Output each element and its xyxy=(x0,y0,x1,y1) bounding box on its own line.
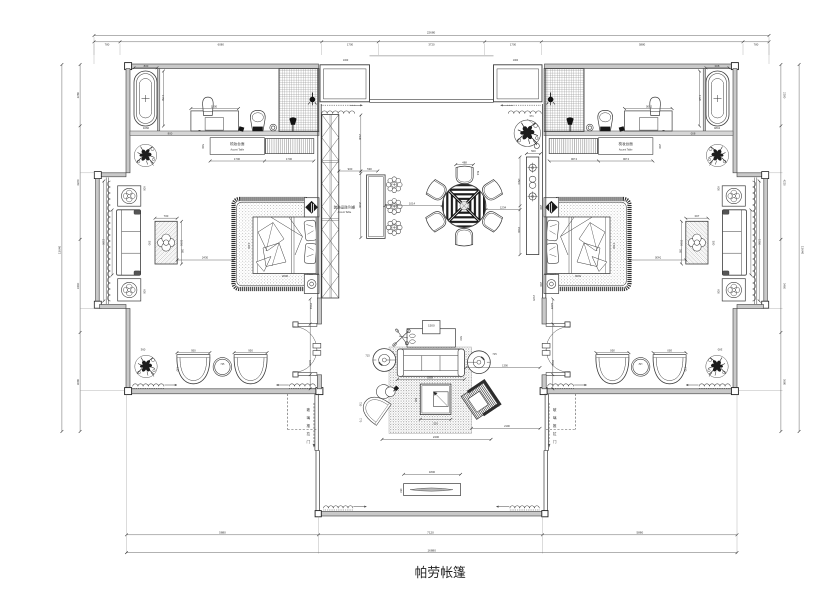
svg-text:1000: 1000 xyxy=(513,59,519,62)
svg-text:拉: 拉 xyxy=(553,431,557,436)
svg-text:拉: 拉 xyxy=(307,431,311,436)
svg-text:1000: 1000 xyxy=(343,59,349,62)
svg-text:350: 350 xyxy=(399,488,403,493)
svg-text:900: 900 xyxy=(348,167,353,171)
svg-text:715: 715 xyxy=(365,354,370,358)
svg-text:3680: 3680 xyxy=(76,378,80,385)
svg-text:5880: 5880 xyxy=(636,531,643,535)
svg-text:玻: 玻 xyxy=(307,407,311,412)
svg-text:22680: 22680 xyxy=(427,31,436,35)
svg-text:930: 930 xyxy=(497,402,501,407)
svg-text:2100: 2100 xyxy=(101,239,105,246)
svg-text:璃: 璃 xyxy=(553,415,557,420)
svg-text:812: 812 xyxy=(476,171,480,176)
svg-text:4220: 4220 xyxy=(76,179,80,186)
svg-text:1800: 1800 xyxy=(429,470,436,474)
svg-text:1060: 1060 xyxy=(143,126,150,130)
svg-text:590: 590 xyxy=(367,167,372,171)
svg-text:390: 390 xyxy=(181,249,184,254)
svg-text:390: 390 xyxy=(148,241,152,246)
svg-text:730: 730 xyxy=(175,367,179,372)
svg-text:730: 730 xyxy=(358,402,362,407)
svg-text:13640: 13640 xyxy=(58,245,62,254)
svg-text:梳妆台面: 梳妆台面 xyxy=(619,141,634,146)
svg-text:1014: 1014 xyxy=(409,201,416,205)
svg-text:1700: 1700 xyxy=(347,43,354,47)
svg-text:520: 520 xyxy=(433,422,438,426)
svg-text:1500: 1500 xyxy=(517,227,521,234)
svg-text:1750: 1750 xyxy=(161,95,165,102)
svg-text:1400: 1400 xyxy=(247,243,251,250)
svg-text:1500: 1500 xyxy=(517,178,521,185)
svg-text:1700: 1700 xyxy=(510,43,517,47)
svg-text:1800: 1800 xyxy=(308,360,312,366)
svg-text:5880: 5880 xyxy=(639,43,646,47)
svg-text:门: 门 xyxy=(307,439,311,444)
svg-text:800: 800 xyxy=(168,132,173,136)
svg-text:2190: 2190 xyxy=(504,424,510,428)
svg-text:800: 800 xyxy=(144,64,149,68)
svg-text:1390: 1390 xyxy=(502,363,508,367)
svg-text:玻: 玻 xyxy=(553,407,557,412)
svg-text:3460: 3460 xyxy=(783,283,787,290)
svg-text:2170: 2170 xyxy=(532,295,536,302)
svg-text:5880: 5880 xyxy=(219,531,226,535)
svg-text:3720: 3720 xyxy=(428,43,435,47)
svg-text:500: 500 xyxy=(531,149,536,153)
svg-text:Accent Table: Accent Table xyxy=(619,148,633,151)
svg-text:2400: 2400 xyxy=(433,435,440,439)
svg-text:2000: 2000 xyxy=(282,274,289,278)
svg-text:16880: 16880 xyxy=(428,548,437,552)
svg-text:600: 600 xyxy=(142,289,146,294)
svg-text:7120: 7120 xyxy=(427,531,434,535)
svg-text:6080: 6080 xyxy=(218,43,225,47)
svg-text:1234: 1234 xyxy=(500,205,507,209)
svg-text:500: 500 xyxy=(459,336,463,341)
svg-text:3460: 3460 xyxy=(76,282,80,289)
svg-text:梳妆台面: 梳妆台面 xyxy=(230,141,245,146)
svg-text:725: 725 xyxy=(220,363,225,366)
svg-text:500: 500 xyxy=(201,144,205,149)
svg-text:700: 700 xyxy=(164,214,169,218)
svg-text:2280: 2280 xyxy=(76,92,80,99)
svg-text:2085: 2085 xyxy=(427,375,433,379)
svg-text:950: 950 xyxy=(191,348,196,352)
svg-text:装饰品陈列桌: 装饰品陈列桌 xyxy=(334,205,356,210)
svg-text:Accent Table: Accent Table xyxy=(338,211,352,214)
svg-text:1700: 1700 xyxy=(286,157,293,161)
svg-text:2280: 2280 xyxy=(782,92,786,99)
svg-text:Accent Table: Accent Table xyxy=(230,148,244,151)
svg-text:璃: 璃 xyxy=(307,415,311,420)
svg-text:1500: 1500 xyxy=(211,104,218,108)
svg-text:3680: 3680 xyxy=(783,379,787,386)
svg-text:2000: 2000 xyxy=(358,202,362,209)
svg-text:1500: 1500 xyxy=(428,324,435,328)
svg-text:950: 950 xyxy=(248,348,253,352)
svg-text:推: 推 xyxy=(307,423,311,428)
svg-text:2330: 2330 xyxy=(358,134,362,141)
svg-text:780: 780 xyxy=(754,43,759,47)
svg-text:推: 推 xyxy=(553,423,557,428)
svg-text:770: 770 xyxy=(358,418,362,423)
svg-text:13640: 13640 xyxy=(801,246,805,255)
svg-text:780: 780 xyxy=(105,43,110,47)
svg-text:715: 715 xyxy=(492,352,497,356)
svg-text:帕劳帐篷: 帕劳帐篷 xyxy=(415,565,466,580)
svg-text:488: 488 xyxy=(462,160,467,164)
svg-text:1700: 1700 xyxy=(234,157,241,161)
svg-text:4220: 4220 xyxy=(783,179,787,186)
svg-text:360: 360 xyxy=(141,348,146,352)
svg-text:600: 600 xyxy=(414,398,417,403)
svg-text:门: 门 xyxy=(553,439,557,444)
svg-text:371: 371 xyxy=(529,114,534,118)
svg-text:1504: 1504 xyxy=(309,303,313,310)
svg-text:600: 600 xyxy=(142,186,146,191)
svg-text:2430: 2430 xyxy=(202,256,209,260)
